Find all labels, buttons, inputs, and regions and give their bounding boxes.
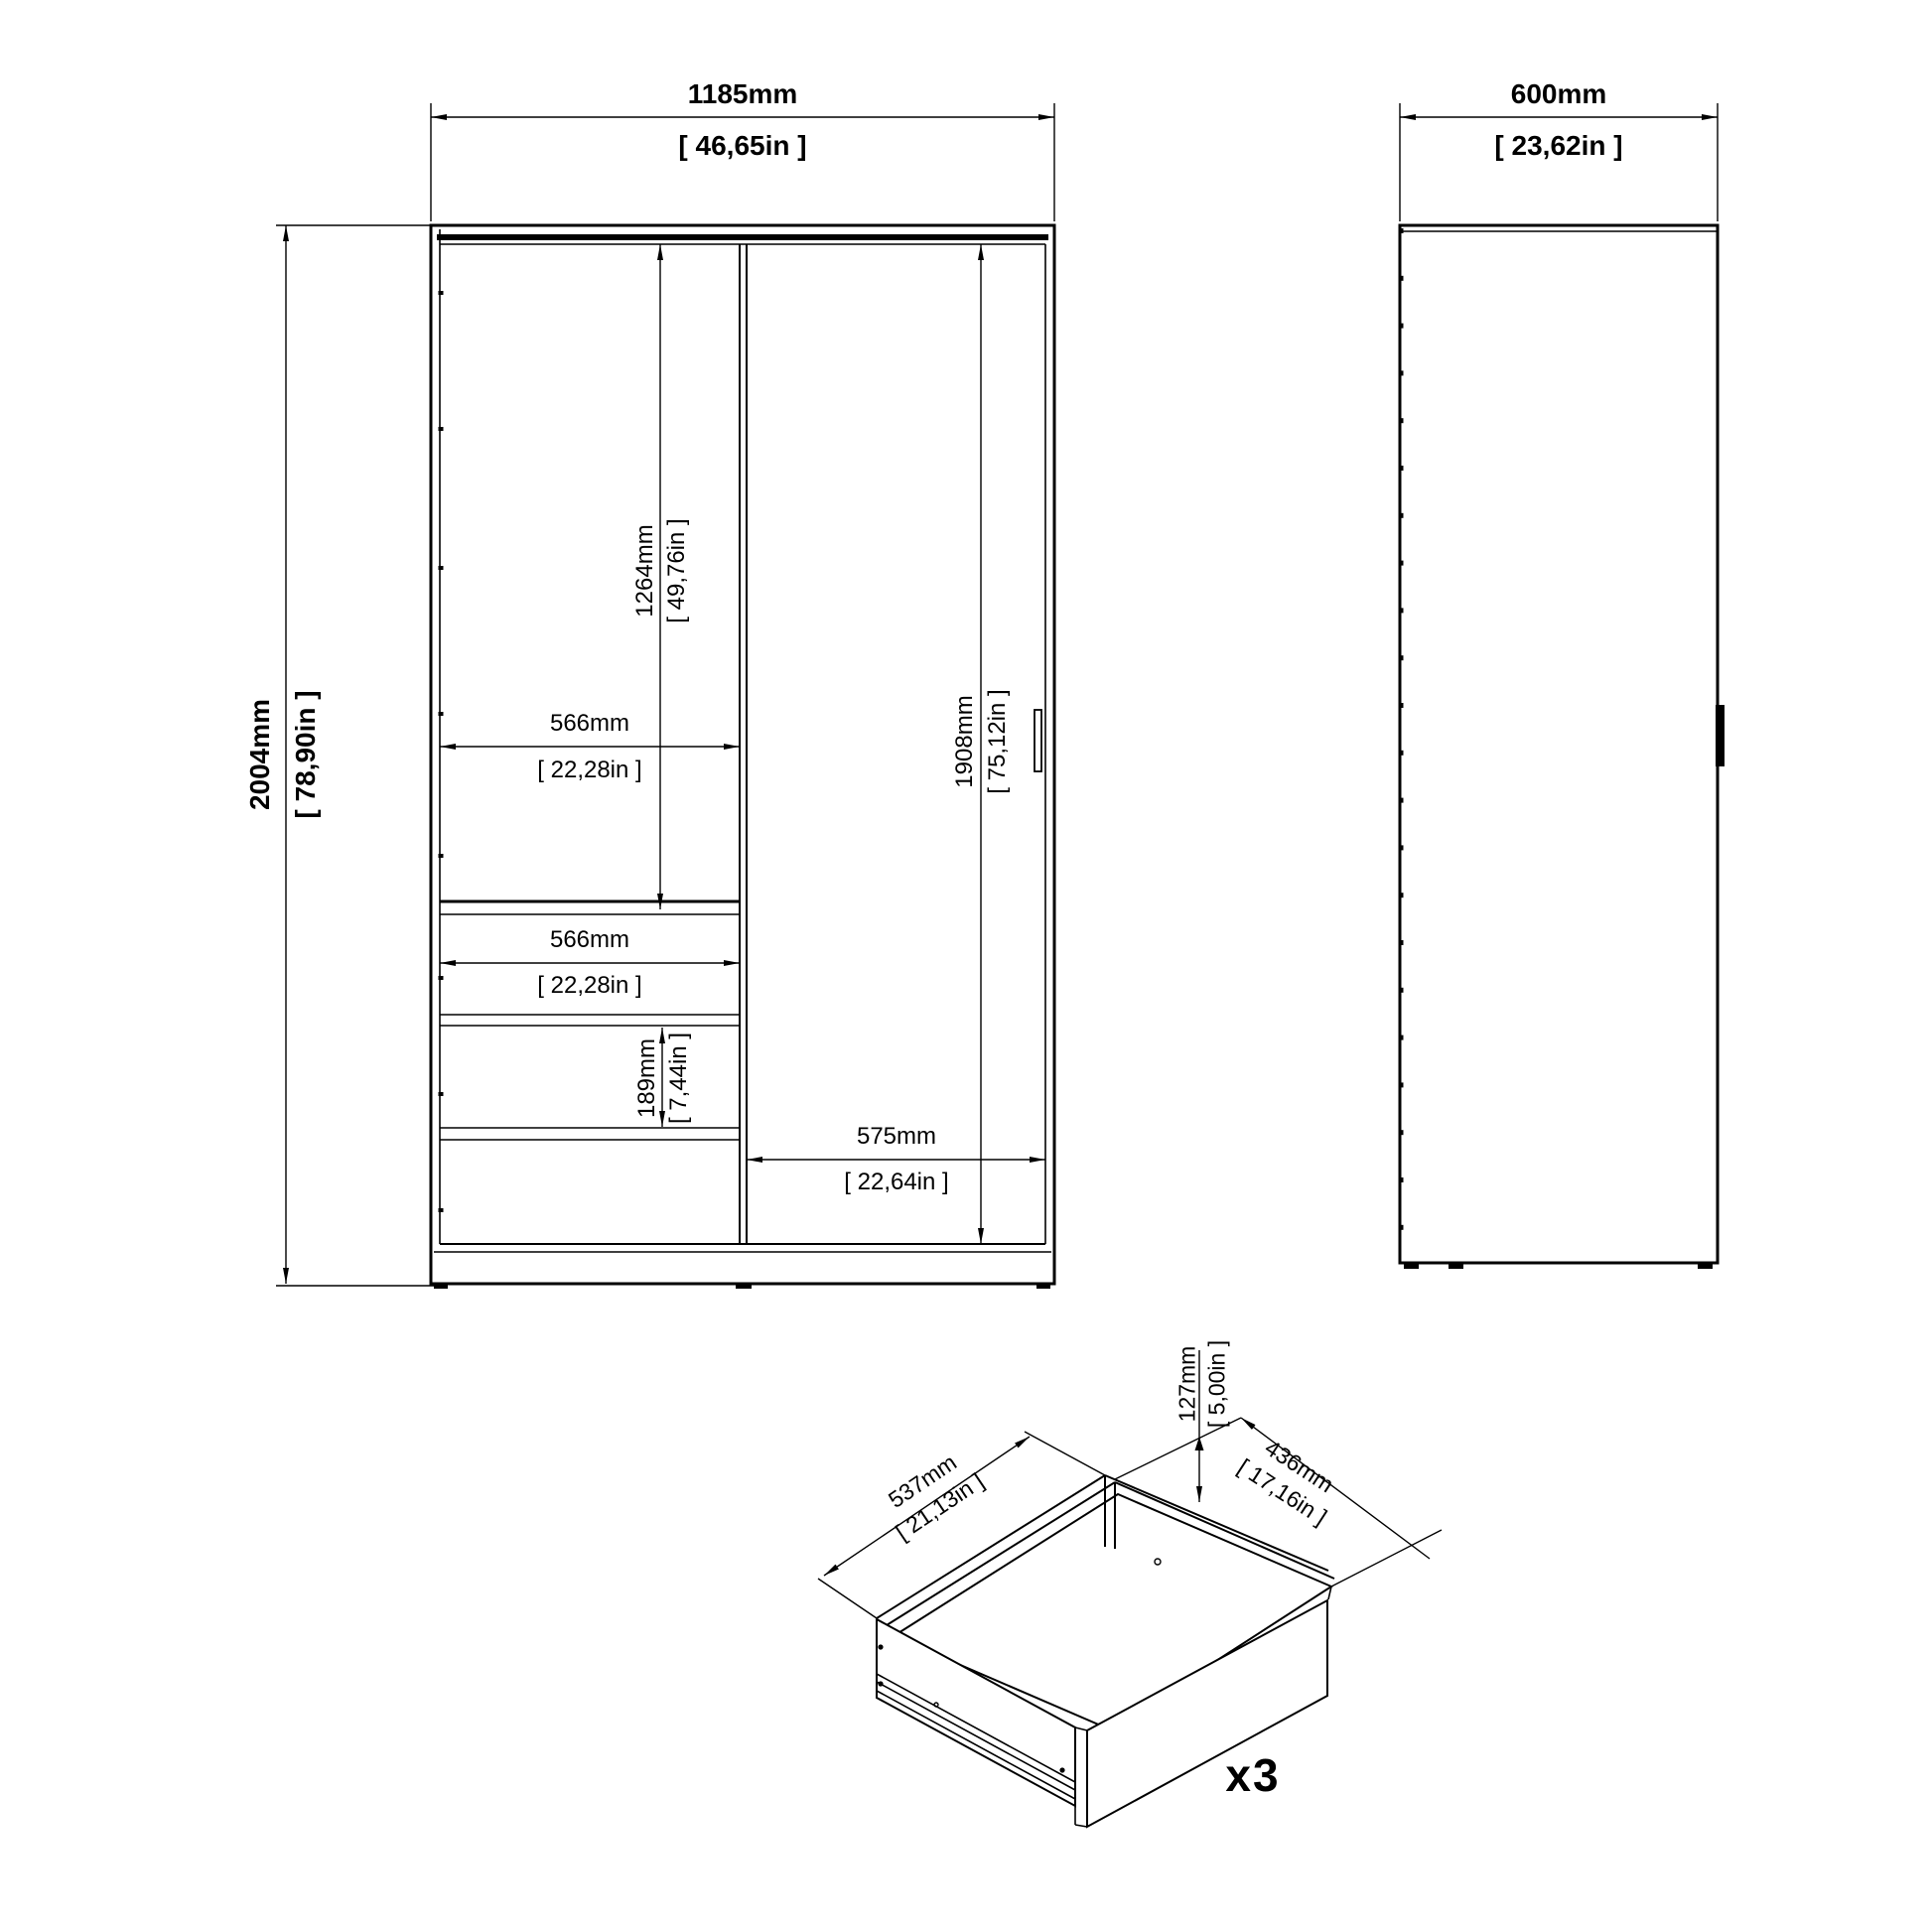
dim-drawer-width-mm: 566mm	[550, 924, 629, 956]
dim-door-width-mm: 575mm	[857, 1121, 936, 1153]
dim-drawer3d-height-mm: 127mm	[1172, 1346, 1202, 1423]
center-divider	[740, 244, 747, 1244]
drawer-isometric-view	[818, 1350, 1442, 1827]
dim-front-height-in: [ 78,90in ]	[287, 690, 325, 818]
dim-compartment-width-mm: 566mm	[550, 708, 629, 740]
technical-drawing-canvas	[0, 0, 1932, 1932]
dim-door-height-mm: 1908mm	[949, 695, 981, 787]
dim-drawer-height-mm: 189mm	[631, 1038, 663, 1118]
side-door-handle	[1716, 705, 1725, 766]
dim-drawer-width-in: [ 22,28in ]	[537, 970, 641, 1002]
sliding-door-track	[437, 234, 1048, 240]
dim-drawer3d-height-in: [ 5,00in ]	[1201, 1340, 1232, 1428]
wardrobe-side-view	[1399, 225, 1725, 1269]
dim-side-depth-in: [ 23,62in ]	[1494, 127, 1622, 165]
dim-compartment-width-in: [ 22,28in ]	[537, 755, 641, 786]
door-handle	[1035, 710, 1041, 771]
dim-compartment-height-in: [ 49,76in ]	[661, 518, 693, 622]
dim-front-width-mm: 1185mm	[688, 75, 798, 113]
dim-compartment-height-mm: 1264mm	[629, 524, 661, 617]
dim-front-height-mm: 2004mm	[241, 699, 279, 810]
drawer-quantity-label: x3	[1225, 1744, 1280, 1806]
side-outer-frame	[1400, 225, 1718, 1263]
dim-door-height-in: [ 75,12in ]	[982, 689, 1014, 793]
dim-front-width-in: [ 46,65in ]	[678, 127, 806, 165]
dim-door-width-in: [ 22,64in ]	[844, 1167, 948, 1198]
wardrobe-dimension-drawing: 1185mm [ 46,65in ] 600mm [ 23,62in ] 200…	[0, 0, 1932, 1932]
dim-side-depth-mm: 600mm	[1511, 75, 1607, 113]
dim-drawer-height-in: [ 7,44in ]	[663, 1033, 695, 1124]
